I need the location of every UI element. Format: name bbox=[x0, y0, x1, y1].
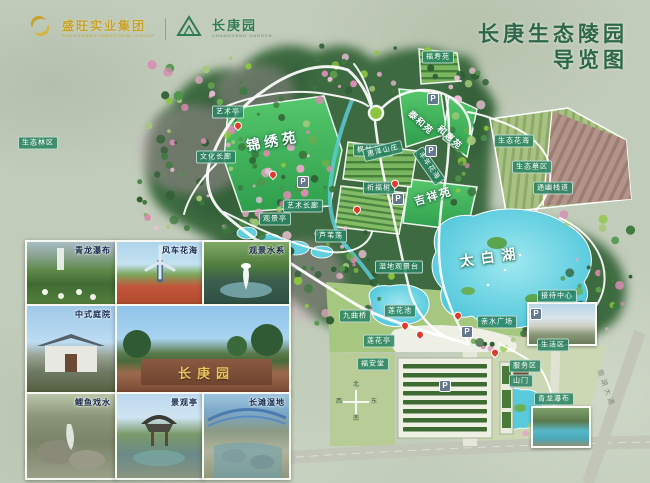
group-logo-icon bbox=[28, 14, 52, 43]
photo-wetland-bridge: 长滩湿地 bbox=[202, 392, 291, 480]
page-title: 长庚生态陵园 导览图 bbox=[478, 22, 628, 75]
park-logo-name: 长庚园 bbox=[212, 19, 272, 32]
photo-label: 青龙瀑布 bbox=[75, 245, 111, 256]
photo-fountain: 观景水系 bbox=[202, 240, 291, 306]
park-logo-icon bbox=[176, 15, 202, 42]
photo-courtyard: 中式庭院 bbox=[25, 304, 117, 394]
entrance-sign: 长庚园 bbox=[141, 359, 272, 385]
photo-label: 观景水系 bbox=[249, 245, 285, 256]
photo-entrance: 长庚园 bbox=[115, 304, 291, 394]
photo-pavilion: 景观亭 bbox=[115, 392, 204, 480]
compass-south: 南 bbox=[353, 416, 359, 422]
photo-label: 鲤鱼戏水 bbox=[75, 397, 111, 408]
group-logo-name: 盛旺实业集团 bbox=[62, 20, 155, 32]
reception-photo-inset bbox=[527, 302, 597, 346]
park-logo-subtext: CHANGGENG GARDEN bbox=[212, 34, 272, 38]
waterfall-photo-inset bbox=[531, 406, 591, 448]
compass-west: 西 bbox=[336, 399, 342, 405]
photo-windmill: 风车花海 bbox=[115, 240, 204, 306]
mountain-gate bbox=[513, 370, 529, 377]
logo-group: 盛旺实业集团 SHENGWANG INDUSTRIAL GROUP 长庚园 CH… bbox=[28, 14, 273, 43]
guide-map-poster: 锦绣苑泰和苑和惠苑吉祥苑太白湖生态林区艺术亭文化长廊枫林花海祈福树艺术长廊观景亭… bbox=[0, 0, 650, 483]
compass: 北 南 东 西 bbox=[336, 384, 376, 420]
logo-divider bbox=[165, 18, 166, 40]
title-line1: 长庚生态陵园 bbox=[478, 22, 628, 48]
compass-east: 东 bbox=[371, 399, 377, 405]
photo-label: 长滩湿地 bbox=[249, 397, 285, 408]
group-logo-subtext: SHENGWANG INDUSTRIAL GROUP bbox=[62, 34, 155, 38]
lotus-pond bbox=[369, 285, 429, 327]
photo-label: 景观亭 bbox=[171, 397, 198, 408]
photo-waterfall: 青龙瀑布 bbox=[25, 240, 117, 306]
eco-burial-fields bbox=[490, 108, 631, 212]
photo-koi-rocks: 鲤鱼戏水 bbox=[25, 392, 117, 480]
photo-label: 风车花海 bbox=[162, 245, 198, 256]
title-line2: 导览图 bbox=[478, 48, 628, 74]
photo-label: 中式庭院 bbox=[75, 309, 111, 320]
compass-north: 北 bbox=[353, 382, 359, 388]
